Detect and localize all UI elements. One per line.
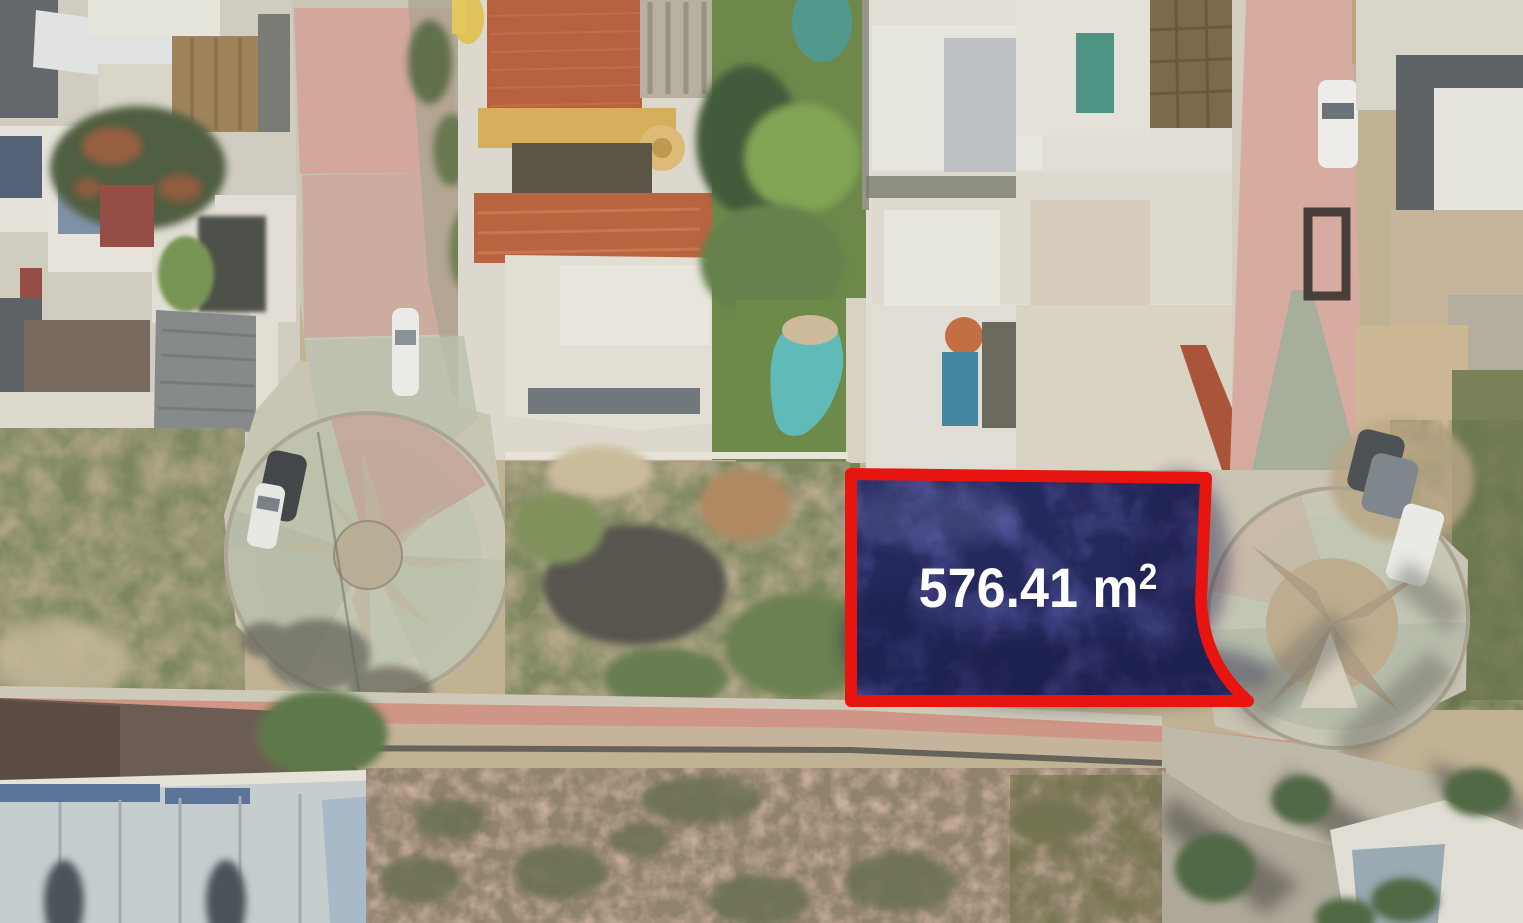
- svg-text:576.41 m2: 576.41 m2: [919, 557, 1158, 619]
